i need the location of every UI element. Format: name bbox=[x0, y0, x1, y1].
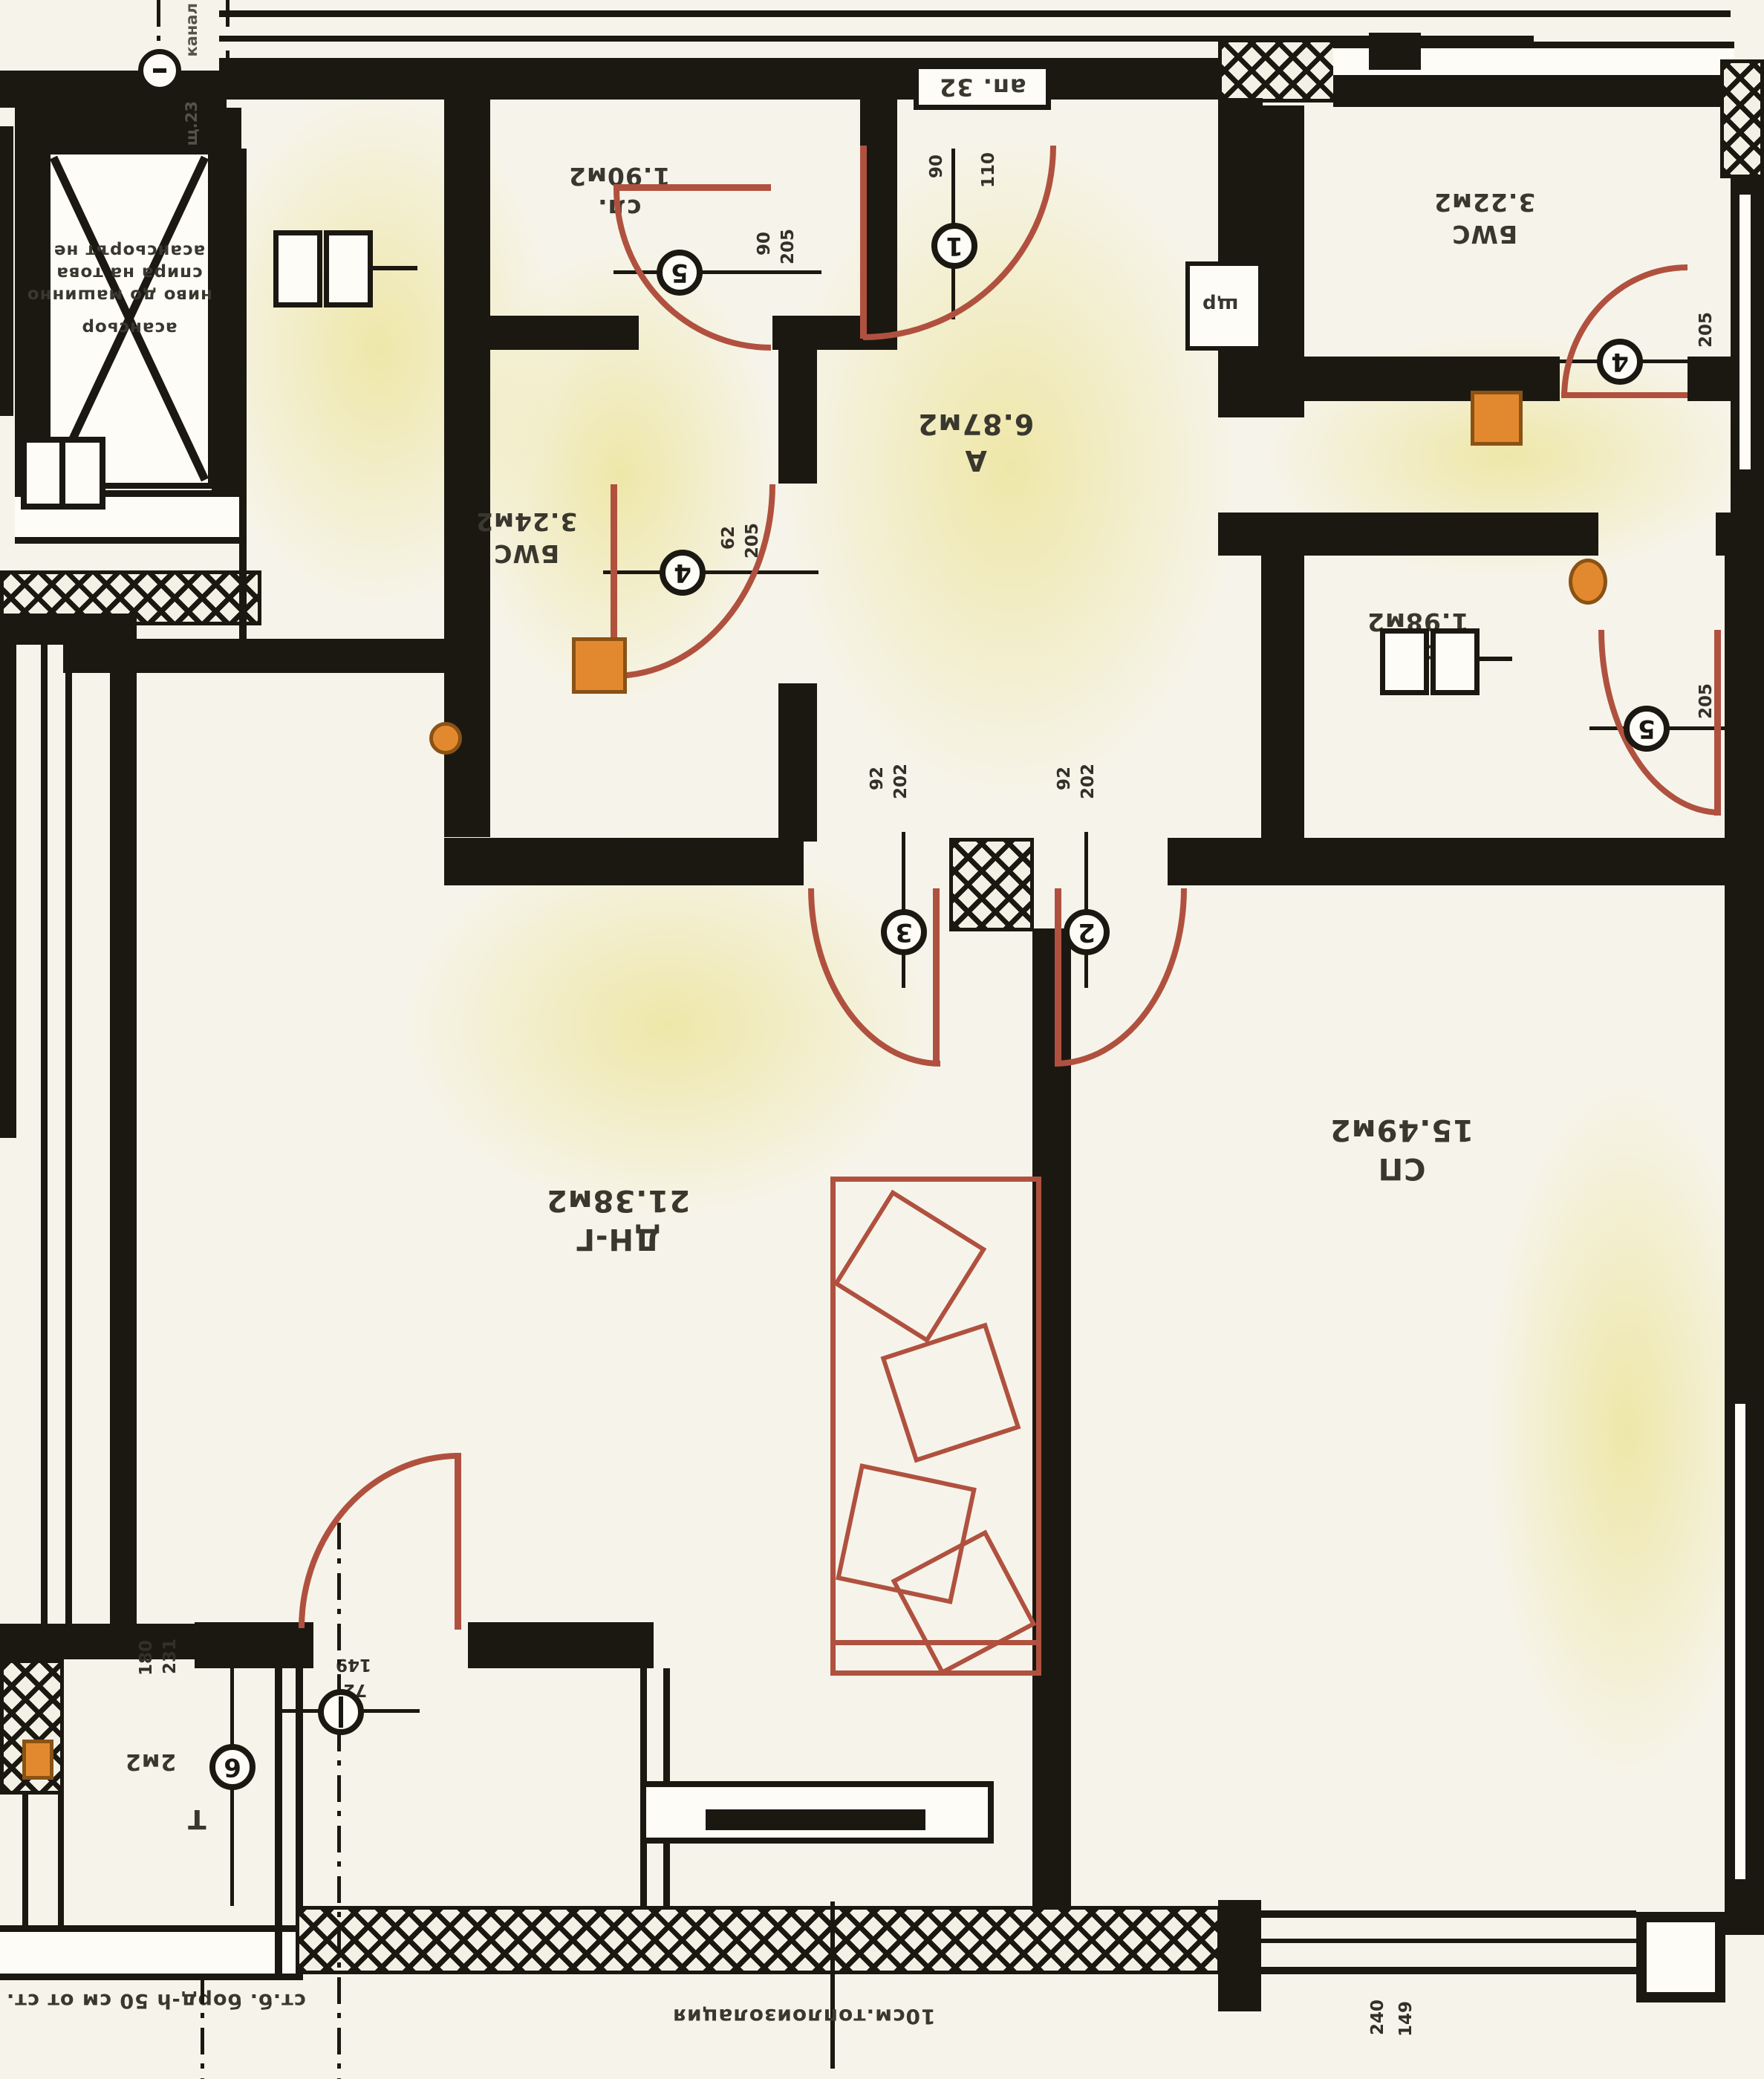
axis-text: канал bbox=[183, 3, 201, 57]
wall bbox=[1333, 80, 1731, 107]
door-2-marker: 2 bbox=[1064, 909, 1110, 955]
dimension: 202 bbox=[891, 764, 911, 799]
wall bbox=[239, 149, 247, 639]
dimension: 180 bbox=[137, 1640, 156, 1676]
window-slit bbox=[1735, 1404, 1745, 1879]
room-area: 3.22м2 bbox=[1433, 186, 1535, 218]
door-number: 3 bbox=[895, 917, 913, 947]
elevator-wall bbox=[15, 108, 241, 151]
wall bbox=[1716, 513, 1732, 556]
tv-cabinet-bar bbox=[706, 1809, 925, 1830]
riser-label: щр bbox=[1202, 291, 1238, 316]
wall bbox=[1687, 357, 1731, 401]
room-label-bath2: БWC 3.22м2 bbox=[1433, 186, 1535, 250]
window-slit bbox=[1739, 195, 1751, 469]
cabinet bbox=[1431, 628, 1480, 695]
elevator-note-line: спира на това bbox=[46, 261, 212, 284]
door-number: 2 bbox=[1078, 917, 1096, 947]
door-number: 1 bbox=[946, 231, 963, 261]
room-area: 21.38м2 bbox=[546, 1181, 690, 1220]
dimension: 231 bbox=[160, 1639, 180, 1674]
wall bbox=[778, 683, 817, 842]
wall bbox=[275, 1665, 282, 1980]
room-name: БWC bbox=[1433, 218, 1535, 250]
window-line bbox=[1261, 1939, 1636, 1943]
room-label-terrace-name: Т bbox=[187, 1800, 206, 1835]
wall bbox=[65, 625, 72, 1658]
door-1-marker: 1 bbox=[931, 223, 977, 269]
apartment-number-box: ап. 32 bbox=[914, 64, 1051, 110]
axis-line bbox=[226, 0, 230, 78]
wall bbox=[41, 625, 48, 1658]
wall bbox=[1218, 1900, 1261, 2011]
door-arc bbox=[299, 1453, 459, 1628]
door-number: 5 bbox=[1638, 714, 1656, 744]
dimension: 205 bbox=[778, 229, 798, 264]
door-leaf bbox=[1714, 630, 1721, 816]
door-leaf bbox=[1055, 888, 1061, 1065]
dimension: 92 bbox=[868, 767, 887, 790]
wall bbox=[1261, 105, 1304, 417]
door-number: 4 bbox=[674, 558, 691, 588]
door-3-marker: 3 bbox=[881, 909, 927, 955]
dimension: 202 bbox=[1078, 764, 1098, 799]
window-mullion bbox=[59, 437, 65, 510]
dimension: 205 bbox=[1696, 312, 1716, 348]
wall bbox=[1261, 556, 1304, 842]
wall bbox=[778, 350, 817, 484]
room-label-terrace-area: 2м2 bbox=[125, 1747, 176, 1776]
tick-line bbox=[1480, 657, 1512, 661]
room-area: 6.87м2 bbox=[917, 405, 1034, 441]
cabinet bbox=[273, 230, 322, 308]
floor-plan-scan: асансьор ниво до машинно спира на това а… bbox=[0, 0, 1764, 2079]
axis-line bbox=[201, 1977, 204, 2079]
door-number: 4 bbox=[1611, 347, 1629, 377]
hatched-pier bbox=[949, 838, 1034, 931]
door-6-marker: 6 bbox=[209, 1744, 256, 1790]
wall bbox=[219, 58, 1222, 100]
axis-text: щ.23 bbox=[183, 101, 201, 146]
dimension: 240 bbox=[1368, 2000, 1387, 2035]
room-label-bath1: БWC 3.24м2 bbox=[475, 505, 577, 569]
door-number: 5 bbox=[671, 258, 689, 287]
dimension: 149 bbox=[336, 1655, 371, 1674]
room-name: БWC bbox=[475, 537, 577, 569]
wall bbox=[468, 1622, 654, 1668]
apartment-number: ап. 32 bbox=[939, 71, 1026, 103]
elevator-note: асансьор ниво до машинно спира на това а… bbox=[46, 239, 212, 339]
room-label-bedroom: СП 15.49м2 bbox=[1329, 1110, 1474, 1188]
axis-marker-icon bbox=[138, 49, 181, 92]
wall bbox=[1369, 33, 1421, 70]
wall bbox=[219, 10, 1731, 17]
elevator-note-line: асансьорът не bbox=[46, 239, 212, 261]
sink-fixture bbox=[1471, 391, 1523, 446]
wall bbox=[0, 625, 16, 1138]
hatched-wall bbox=[1720, 59, 1764, 178]
wall bbox=[444, 838, 804, 885]
axis-marker-icon bbox=[318, 1689, 364, 1735]
column-fixture bbox=[22, 1740, 53, 1780]
corner-column bbox=[1636, 1912, 1725, 2002]
room-name: СП bbox=[1329, 1149, 1474, 1188]
tick-line bbox=[373, 266, 417, 270]
hatched-wall bbox=[1218, 39, 1337, 103]
wall bbox=[58, 1795, 64, 1928]
elevator-wall bbox=[212, 108, 241, 490]
door-leaf bbox=[933, 888, 940, 1065]
dimension-tick bbox=[830, 1901, 835, 2069]
sink-fixture bbox=[572, 637, 627, 694]
wall bbox=[22, 1795, 28, 1928]
door-leaf bbox=[614, 184, 771, 191]
dimension: 92 bbox=[1055, 767, 1074, 790]
door-4-marker: 4 bbox=[660, 550, 706, 596]
door-4-right-marker: 4 bbox=[1597, 339, 1643, 385]
cabinet bbox=[324, 230, 373, 308]
axis-line bbox=[157, 0, 160, 52]
room-label-living: ДН-Г 21.38м2 bbox=[546, 1181, 690, 1258]
room-name: А bbox=[917, 441, 1034, 478]
wall bbox=[195, 1622, 313, 1668]
wall bbox=[110, 625, 137, 1659]
insulation-note: 10см.топлоизолация bbox=[672, 2002, 936, 2029]
wall bbox=[444, 316, 639, 350]
insulated-wall bbox=[296, 1906, 1221, 1974]
door-leaf bbox=[1561, 392, 1687, 398]
elevator-label: асансьор bbox=[46, 316, 212, 339]
riser-dot bbox=[429, 722, 462, 755]
door-5-right-marker: 5 bbox=[1624, 706, 1670, 752]
parapet-note: ст.б. борд-h 50 см от ст. bbox=[6, 1988, 306, 2014]
room-label-hall: А 6.87м2 bbox=[917, 405, 1034, 478]
wall bbox=[0, 126, 13, 416]
room-area: 3.24м2 bbox=[475, 505, 577, 537]
door-5-marker: 5 bbox=[657, 250, 703, 296]
room-name: ДН-Г bbox=[546, 1220, 690, 1258]
elevator-note-line: ниво до машинно bbox=[46, 284, 212, 306]
window-line bbox=[1261, 1910, 1636, 1918]
cabinet bbox=[1380, 628, 1429, 695]
parapet bbox=[0, 1925, 296, 1980]
paper-tint bbox=[1485, 1077, 1764, 1783]
door-leaf bbox=[455, 1453, 461, 1630]
wall bbox=[1218, 98, 1263, 417]
door-number: 6 bbox=[224, 1752, 241, 1782]
room-area: 15.49м2 bbox=[1329, 1110, 1474, 1149]
window-line bbox=[1261, 1967, 1636, 1974]
wall bbox=[1168, 838, 1731, 885]
wall bbox=[1218, 513, 1598, 556]
dimension: 149 bbox=[1396, 2001, 1416, 2037]
riser-dot bbox=[1569, 559, 1607, 605]
door-leaf bbox=[860, 146, 867, 339]
